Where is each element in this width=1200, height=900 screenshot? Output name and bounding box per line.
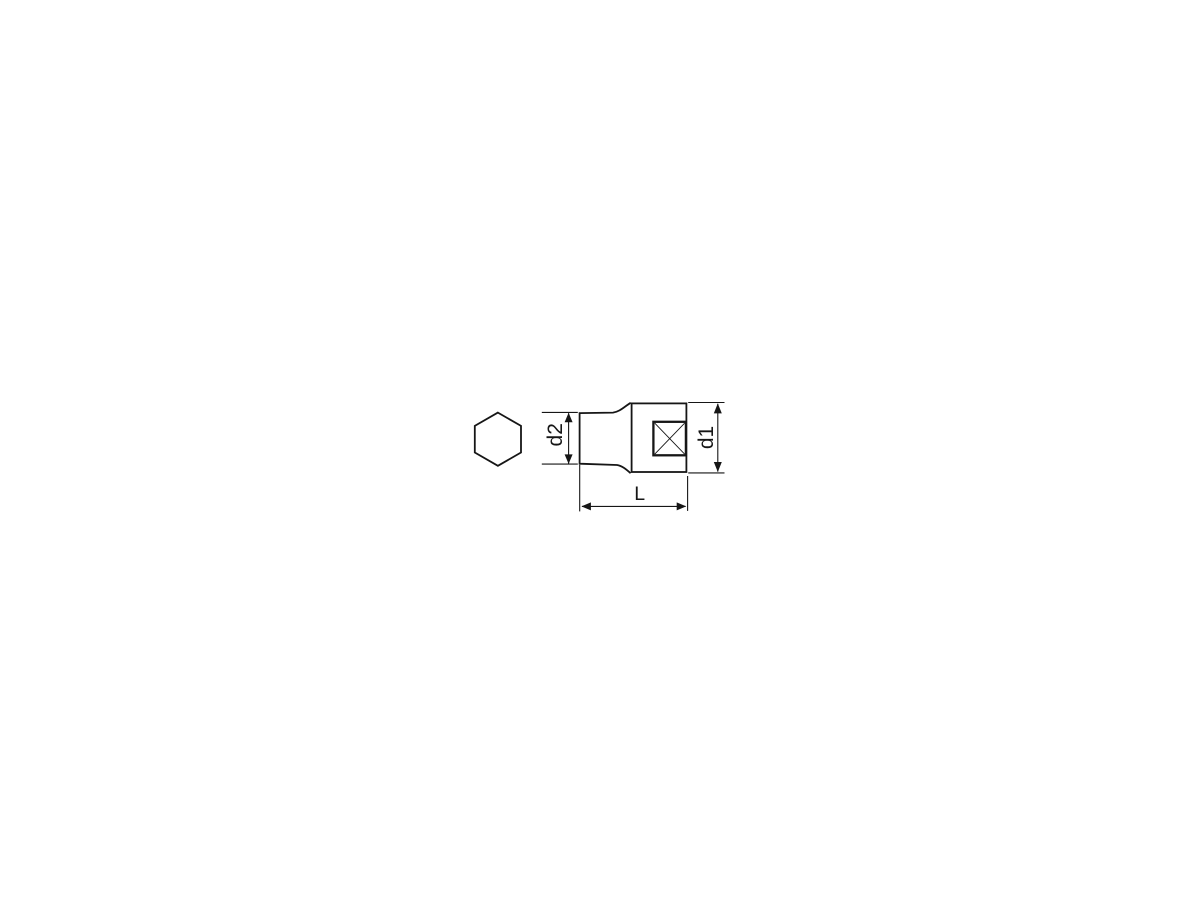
svg-text:L: L: [634, 483, 645, 505]
svg-text:d2: d2: [544, 423, 567, 446]
svg-text:d1: d1: [695, 426, 718, 449]
